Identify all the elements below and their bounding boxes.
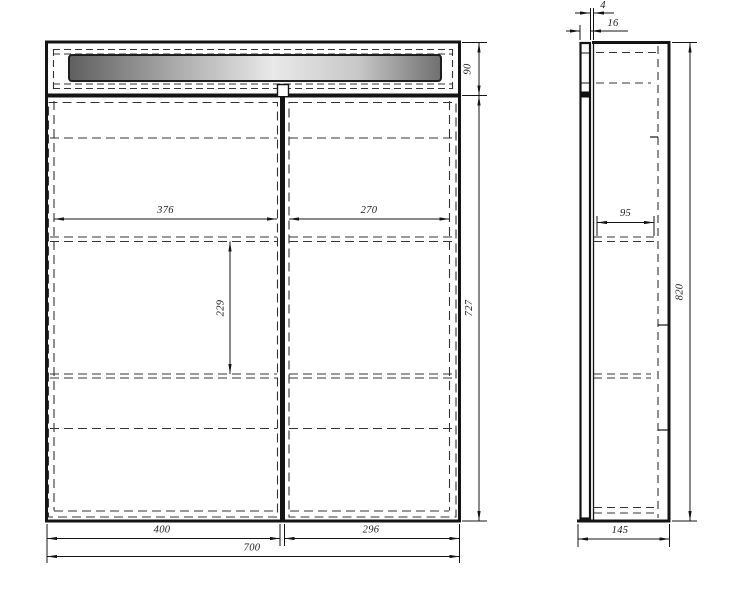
door-section-height-label: 727	[464, 299, 475, 316]
canvas-background	[0, 0, 734, 600]
top-section-height-label: 90	[463, 63, 474, 75]
technical-drawing-canvas: 376 270 229 90 727 400	[0, 0, 734, 600]
door-handle	[278, 85, 289, 97]
front-gap-label: 4	[600, 0, 606, 11]
drawing-svg: 376 270 229 90 727 400	[0, 0, 734, 600]
total-width-label: 700	[244, 543, 261, 554]
left-door-width-label: 400	[154, 525, 171, 536]
inner-right-width-label: 270	[361, 205, 378, 216]
led-light-bar	[69, 55, 441, 81]
panel-thickness-label: 16	[607, 18, 619, 29]
total-height-label: 820	[675, 283, 686, 300]
total-depth-label: 145	[612, 525, 629, 536]
inner-left-width-label: 376	[156, 205, 174, 216]
shelf-depth-label: 95	[620, 208, 631, 219]
door-joint	[580, 92, 592, 98]
shelf-span-label: 229	[216, 299, 227, 316]
right-door-width-label: 296	[363, 525, 380, 536]
